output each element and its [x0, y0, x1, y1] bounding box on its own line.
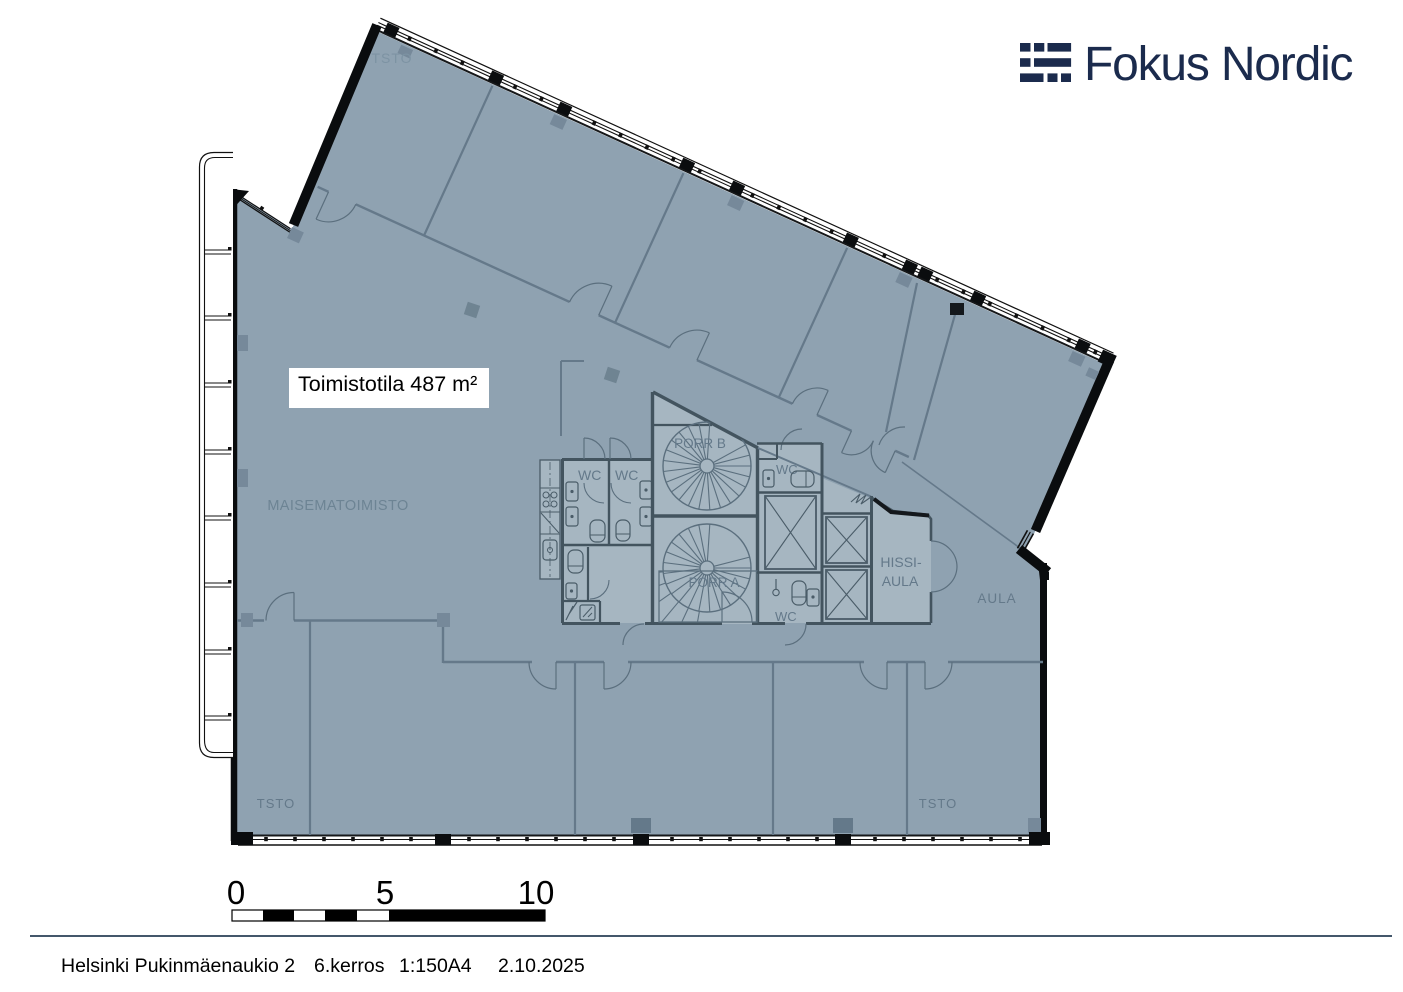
svg-text:PORR B: PORR B: [674, 436, 726, 451]
svg-text:10: 10: [518, 874, 555, 911]
svg-text:HISSI-: HISSI-: [880, 554, 922, 570]
svg-text:1:150A4: 1:150A4: [399, 955, 472, 977]
svg-text:PORR A: PORR A: [688, 575, 739, 590]
svg-text:MAISEMATOIMISTO: MAISEMATOIMISTO: [267, 498, 408, 514]
svg-text:TSTO: TSTO: [257, 796, 295, 811]
svg-text:WC: WC: [615, 467, 638, 483]
svg-text:Helsinki Pukinmäenaukio 2: Helsinki Pukinmäenaukio 2: [61, 955, 295, 977]
svg-text:WC: WC: [578, 467, 601, 483]
svg-text:WC: WC: [775, 609, 797, 624]
svg-text:TSTO: TSTO: [371, 50, 412, 66]
svg-text:TSTO: TSTO: [919, 796, 957, 811]
svg-text:WC: WC: [776, 462, 798, 477]
svg-text:Fokus Nordic: Fokus Nordic: [1084, 38, 1353, 91]
svg-text:Toimistotila 487 m²: Toimistotila 487 m²: [298, 372, 477, 396]
svg-text:0: 0: [227, 874, 245, 911]
svg-text:6.kerros: 6.kerros: [314, 955, 385, 977]
svg-text:AULA: AULA: [977, 591, 1016, 606]
svg-text:5: 5: [376, 874, 394, 911]
svg-text:AULA: AULA: [882, 573, 919, 589]
svg-text:2.10.2025: 2.10.2025: [498, 955, 585, 977]
